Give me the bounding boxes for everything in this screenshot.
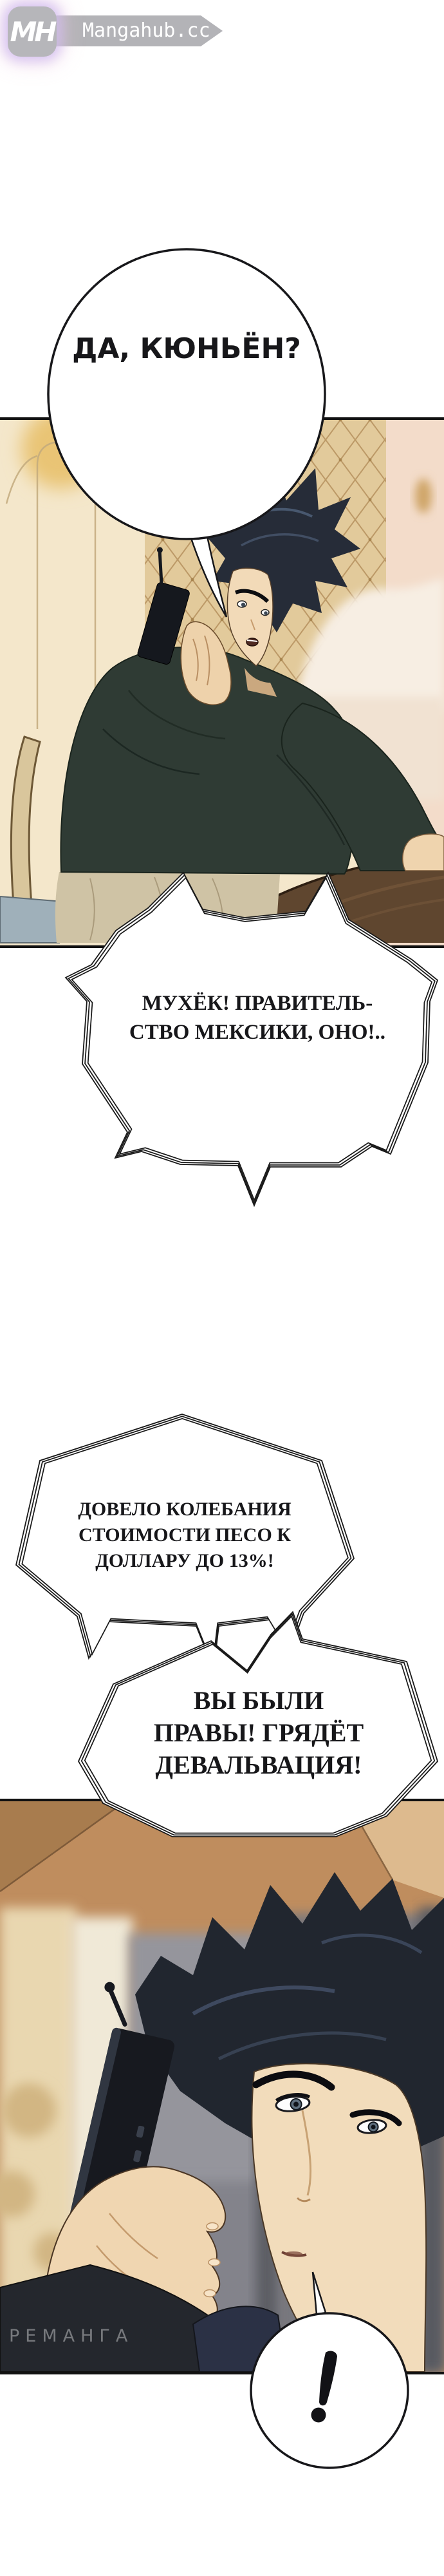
bubble-3-line-2: СТОИМОСТИ ПЕСО К bbox=[61, 1522, 308, 1548]
bubble-4-line-2: ПРАВЫ! ГРЯДЁТ bbox=[124, 1717, 394, 1749]
site-monogram: MH bbox=[10, 16, 55, 48]
site-name-label: Mangahub.cc bbox=[54, 15, 223, 46]
bubble-2-text: МУХЁК! ПРАВИТЕЛЬ- СТВО МЕКСИКИ, ОНО!.. bbox=[109, 989, 405, 1047]
bubble-4-line-3: ДЕВАЛЬВАЦИЯ! bbox=[124, 1749, 394, 1781]
bubble-3-line-1: ДОВЕЛО КОЛЕБАНИЯ bbox=[61, 1497, 308, 1522]
bubble-3-line-3: ДОЛЛАРУ ДО 13%! bbox=[61, 1548, 308, 1574]
site-logo[interactable]: Mangahub.cc MH bbox=[6, 5, 225, 58]
site-logo-banner: Mangahub.cc bbox=[54, 15, 223, 46]
watermark-text: РЕМАНГА bbox=[9, 2326, 133, 2346]
bubble-tail bbox=[313, 2272, 326, 2315]
manga-reader-page: Mangahub.cc MH ДА, КЮНЬЁН? bbox=[0, 0, 444, 2576]
door-handle bbox=[415, 478, 432, 513]
bubble-body bbox=[48, 249, 325, 539]
bubble-2-line-2: СТВО МЕКСИКИ, ОНО!.. bbox=[109, 1018, 405, 1047]
site-logo-icon: MH bbox=[8, 6, 57, 57]
bubble-1-text: ДА, КЮНЬЁН? bbox=[45, 332, 328, 365]
speech-bubble-round bbox=[0, 245, 373, 657]
bubble-4-text: ВЫ БЫЛИ ПРАВЫ! ГРЯДЁТ ДЕВАЛЬВАЦИЯ! bbox=[124, 1685, 394, 1781]
bubble-3-text: ДОВЕЛО КОЛЕБАНИЯ СТОИМОСТИ ПЕСО К ДОЛЛАР… bbox=[61, 1497, 308, 1574]
bubble-4-line-1: ВЫ БЫЛИ bbox=[124, 1685, 394, 1717]
bubble-tail bbox=[190, 533, 227, 617]
bubble-2-line-1: МУХЁК! ПРАВИТЕЛЬ- bbox=[109, 989, 405, 1018]
speech-bubble-exclamation bbox=[232, 2260, 431, 2479]
